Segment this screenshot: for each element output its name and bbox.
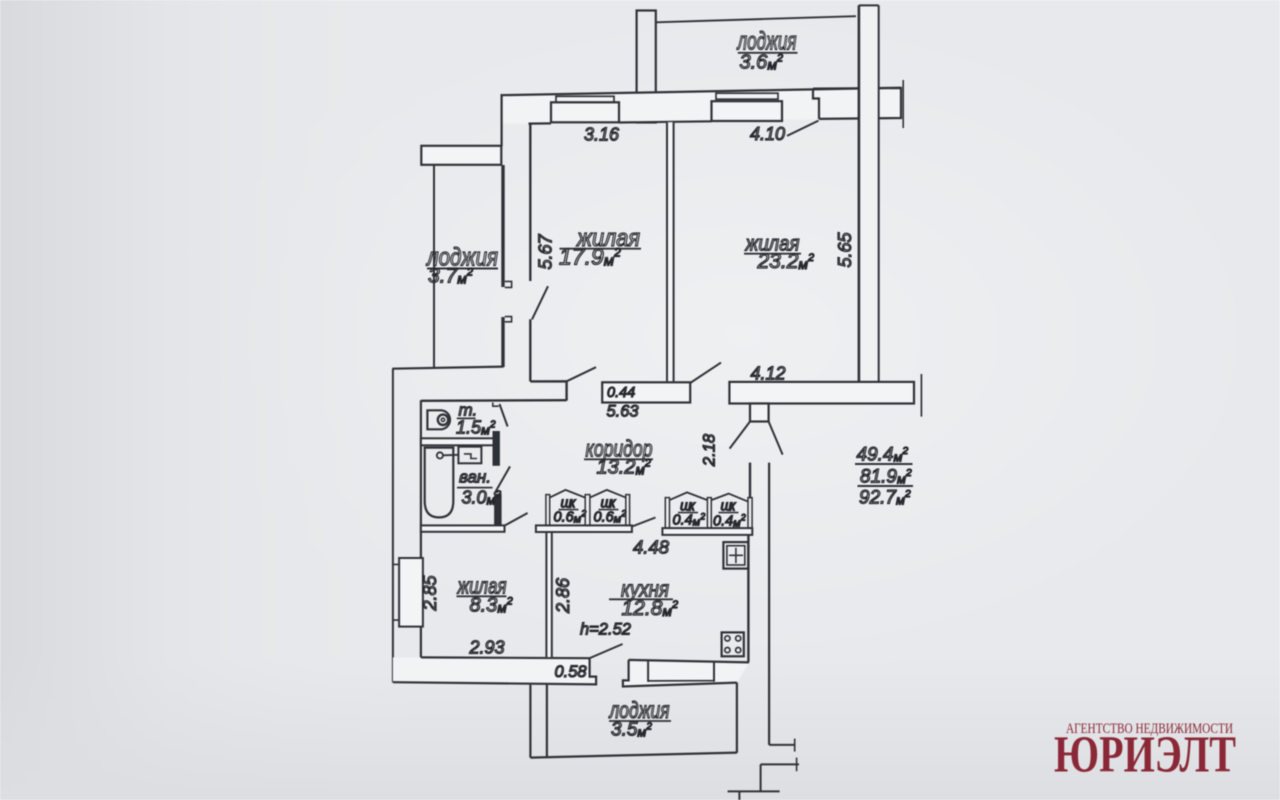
svg-text:2.93: 2.93 xyxy=(469,638,505,658)
svg-text:4.48: 4.48 xyxy=(633,537,670,558)
svg-text:4.10: 4.10 xyxy=(750,124,785,144)
svg-text:3.6м2: 3.6м2 xyxy=(740,52,784,74)
svg-text:4.12: 4.12 xyxy=(751,364,786,384)
svg-text:5.67: 5.67 xyxy=(536,234,556,270)
svg-text:2.86: 2.86 xyxy=(553,577,573,614)
svg-text:0.58: 0.58 xyxy=(555,663,588,681)
svg-text:8.3м2: 8.3м2 xyxy=(470,595,513,617)
svg-text:h=2.52: h=2.52 xyxy=(580,621,631,639)
svg-text:ЮРИЭЛТ: ЮРИЭЛТ xyxy=(1054,727,1236,784)
svg-text:3.7м2: 3.7м2 xyxy=(428,265,473,288)
svg-text:2.85: 2.85 xyxy=(420,575,440,612)
svg-text:3.5м2: 3.5м2 xyxy=(611,720,652,741)
svg-text:5.63: 5.63 xyxy=(607,403,640,421)
svg-text:ван.: ван. xyxy=(459,468,491,487)
svg-text:2.18: 2.18 xyxy=(701,433,719,467)
svg-text:3.16: 3.16 xyxy=(584,125,620,145)
svg-text:5.65: 5.65 xyxy=(835,232,855,268)
svg-text:0.44: 0.44 xyxy=(607,385,635,401)
